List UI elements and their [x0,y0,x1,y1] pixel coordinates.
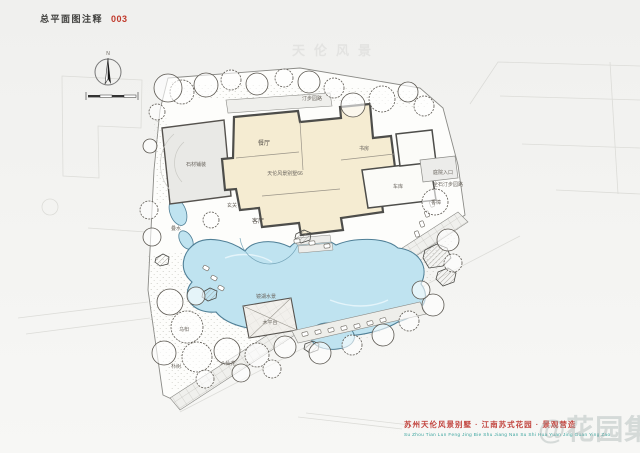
room-label-living: 客厅 [252,217,264,225]
stepping-stone [328,327,335,332]
tree-canopy [399,311,419,331]
stepping-stone [354,323,361,328]
room-label-study: 书房 [359,145,369,152]
entrance-label: 庭院入口 [433,169,453,176]
tree-canopy [342,335,362,355]
stepping-stone [302,331,309,336]
tree-canopy [275,69,293,87]
entrance-path-label: 全石汀步园路 [433,181,463,188]
rear-path-label: 汀步园路 [302,95,322,102]
tree-canopy [194,73,218,97]
plant-label-hackberry: 朴树 [171,363,181,370]
terrace-label: 石材铺装 [186,161,206,168]
cascade-label: 叠水 [171,225,181,232]
tree-canopy [369,86,395,112]
tree-canopy [157,289,183,315]
tree-canopy [274,336,296,358]
tree-canopy [263,360,281,378]
room-label-dining: 餐厅 [258,139,270,147]
room-label-foyer: 玄关 [227,202,237,209]
north-label: N [106,51,110,57]
building-name-label: 天伦风景别墅66 [267,170,303,177]
room-label-garage: 车库 [393,183,403,190]
plant-label-camphor: 香樟 [431,199,441,206]
tree-canopy [187,287,205,305]
plant-label-hydrangea: 八仙花 [220,360,235,367]
tree-canopy [149,104,165,120]
pond-label: 镜湖水景 [256,293,276,300]
tree-canopy [196,370,214,388]
stepping-stone [294,239,300,244]
stepping-stone [309,241,315,246]
stepping-stone [315,329,322,334]
tree-canopy [309,342,331,364]
tree-canopy [324,78,344,98]
site-plan-drawing: N 餐厅 客厅 玄关 书房 车库 天伦风景别墅66 石材铺装 汀步园路 庭院入口… [0,0,640,453]
plant-label-tallow: 乌桕 [179,326,189,333]
tree-canopy [246,73,268,95]
tree-canopy [143,139,157,153]
stepping-stone [380,317,387,322]
tree-canopy [414,96,434,116]
tree-canopy [154,74,182,102]
tree-canopy [341,93,365,117]
entrance-pad [420,156,458,182]
tree-canopy [298,71,320,93]
tree-canopy [152,341,176,365]
tree-canopy [143,228,161,246]
brand-watermark: @花园集 [538,408,640,448]
tree-canopy [221,70,241,90]
tree-canopy [372,324,394,346]
deck-label: 木平台 [262,319,277,326]
tree-canopy [140,201,158,219]
stepping-stone [324,244,330,249]
tree-canopy [437,229,459,251]
north-arrow: N [95,51,121,85]
drawing-sheet: 总平面图注释003 天伦风景 [0,0,640,453]
tree-canopy [412,281,430,299]
scale-bar [86,92,138,100]
stepping-stone [367,320,374,325]
stepping-stone [341,325,348,330]
tree-canopy [398,82,418,102]
tree-canopy [203,212,219,228]
tree-canopy [444,254,462,272]
tree-canopy [182,342,212,372]
